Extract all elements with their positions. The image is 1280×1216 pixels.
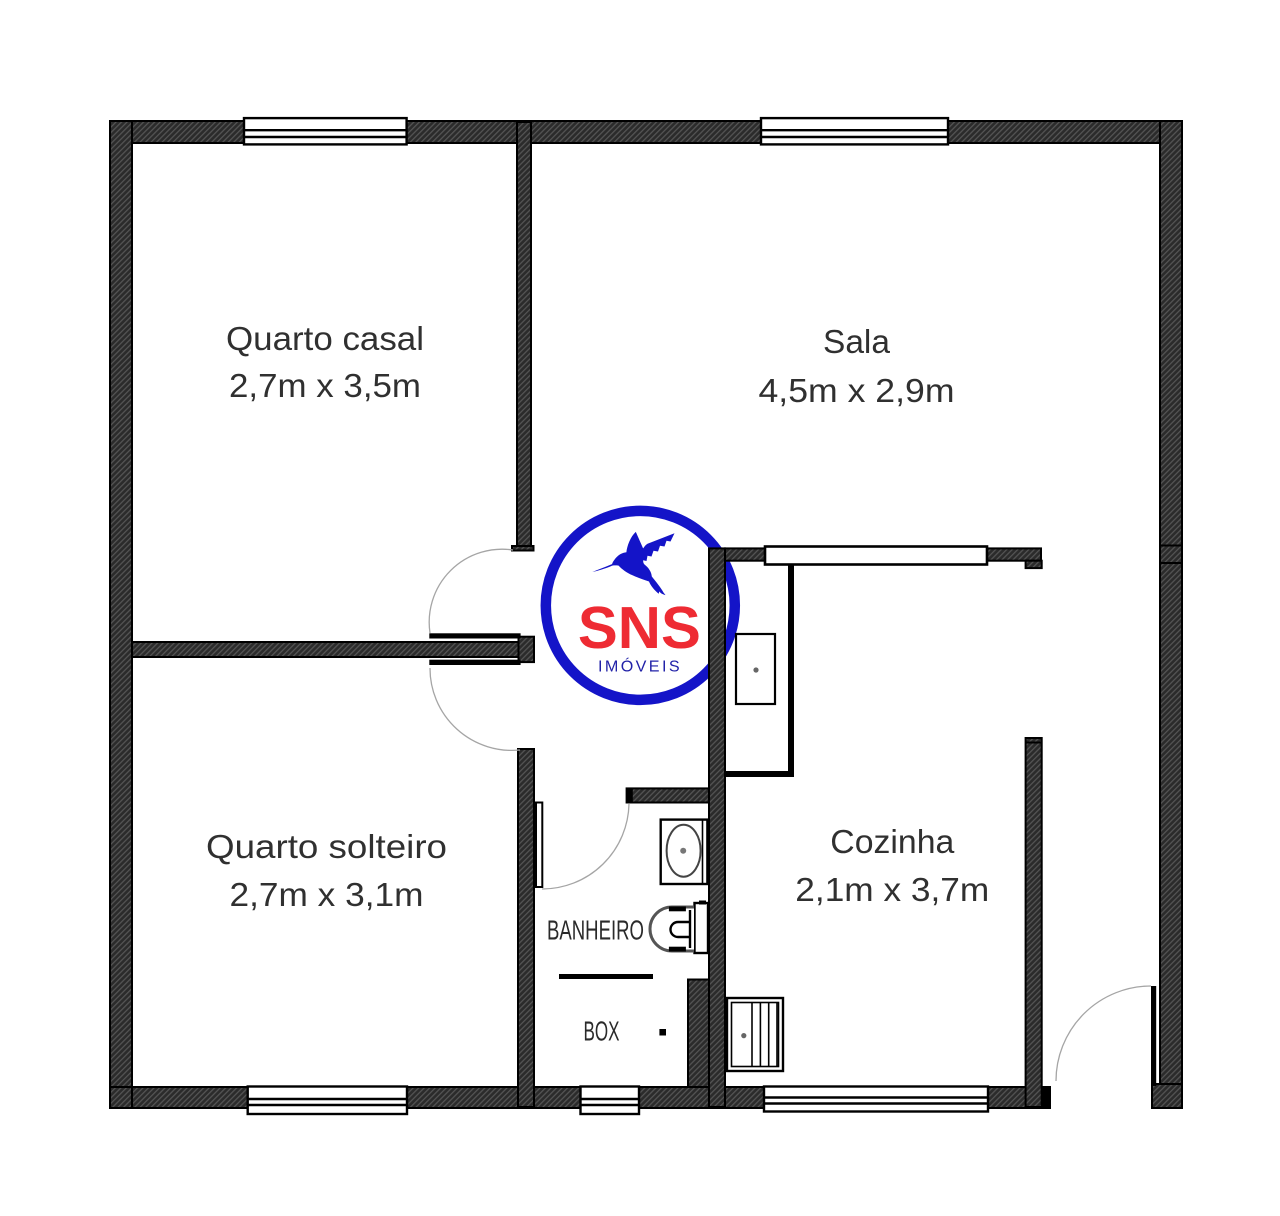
svg-text:Sala: Sala: [823, 324, 890, 361]
svg-text:Cozinha: Cozinha: [830, 824, 954, 861]
svg-text:2,7m x 3,1m: 2,7m x 3,1m: [230, 877, 424, 914]
svg-text:Quarto casal: Quarto casal: [226, 321, 424, 358]
svg-text:2,7m x 3,5m: 2,7m x 3,5m: [229, 368, 421, 405]
svg-text:IMÓVEIS: IMÓVEIS: [598, 659, 682, 676]
svg-text:BANHEIRO: BANHEIRO: [547, 915, 644, 946]
svg-text:2,1m x 3,7m: 2,1m x 3,7m: [795, 872, 989, 909]
svg-text:4,5m x 2,9m: 4,5m x 2,9m: [759, 373, 955, 410]
svg-text:BOX: BOX: [584, 1016, 620, 1047]
svg-text:Quarto solteiro: Quarto solteiro: [206, 829, 447, 866]
svg-text:SNS: SNS: [578, 595, 701, 661]
